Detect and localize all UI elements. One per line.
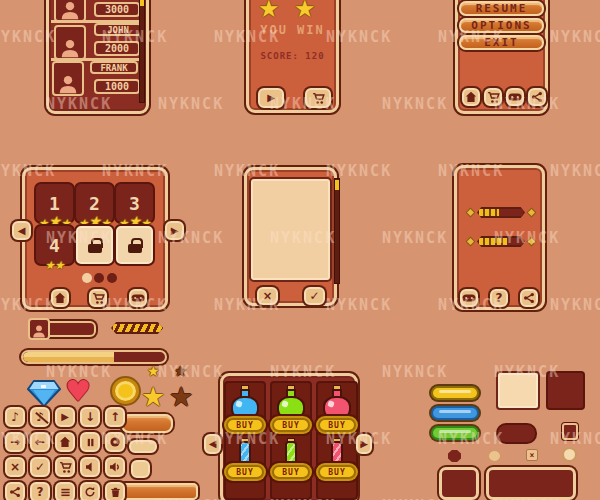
next-icon: ▶ bbox=[360, 439, 368, 449]
share-icon bbox=[17, 487, 20, 490]
shop-cart-icon bbox=[96, 301, 99, 304]
menu-list-icon bbox=[61, 488, 69, 490]
shop-cart-icon bbox=[495, 100, 498, 103]
arrow-down-button[interactable]: ↓ bbox=[80, 407, 100, 427]
gamepad-icon bbox=[140, 297, 142, 299]
gamepad-icon bbox=[511, 96, 513, 98]
home-button[interactable] bbox=[51, 289, 69, 307]
leaderboard-score: 3000 bbox=[94, 2, 140, 17]
arrow-left-icon: ← bbox=[35, 436, 45, 448]
level-number: 3 bbox=[129, 193, 140, 214]
gamepad-icon bbox=[131, 293, 145, 303]
win-star-icon: ★ bbox=[258, 0, 280, 21]
potion-part bbox=[277, 396, 305, 419]
home-button[interactable] bbox=[462, 88, 480, 106]
pause-icon bbox=[85, 437, 96, 448]
small-tan-square-button[interactable] bbox=[131, 460, 150, 478]
small-star-brown-icon: ★ bbox=[174, 364, 187, 378]
watermark-text: NYKNCK bbox=[158, 95, 224, 113]
leaderboard-scrollbar[interactable] bbox=[139, 0, 145, 103]
tan-ring-button[interactable] bbox=[562, 447, 577, 462]
trash-icon bbox=[113, 487, 116, 488]
level-tile-1[interactable]: 1★★★ bbox=[36, 184, 73, 222]
sound-off-icon bbox=[84, 461, 96, 473]
buy-button[interactable]: BUY bbox=[226, 465, 264, 479]
progress-bar bbox=[21, 350, 167, 364]
leaderboard-avatar bbox=[52, 61, 84, 96]
level-tile-locked[interactable] bbox=[76, 226, 113, 264]
tile-star-icon: ★ bbox=[45, 260, 55, 271]
watermark-text: NYKNCK bbox=[550, 296, 600, 314]
scrollbar-thumb[interactable] bbox=[335, 180, 339, 190]
share-button[interactable] bbox=[528, 88, 546, 106]
watermark-text: NYKNCK bbox=[158, 363, 224, 381]
leaderboard-avatar bbox=[54, 0, 86, 22]
buy-button[interactable]: BUY bbox=[226, 418, 264, 432]
leaderboard-score: 2000 bbox=[94, 41, 140, 56]
page-dot[interactable] bbox=[94, 273, 104, 283]
wide-frame-panel bbox=[486, 467, 576, 500]
coin-icon bbox=[112, 378, 139, 404]
menu-list-button[interactable] bbox=[55, 482, 75, 500]
diamond-gem-icon bbox=[27, 380, 61, 407]
share-icon bbox=[539, 99, 542, 102]
leaderboard-name: FRANK bbox=[90, 61, 138, 74]
gamepad-icon bbox=[465, 297, 467, 299]
pause-icon bbox=[87, 438, 89, 445]
person-icon bbox=[58, 74, 78, 94]
gamepad-icon bbox=[463, 295, 476, 302]
sound-off-button[interactable] bbox=[80, 457, 100, 477]
small-framed-square bbox=[562, 423, 578, 440]
level-number: 2 bbox=[89, 193, 100, 214]
options-button[interactable]: OPTIONS bbox=[459, 18, 544, 33]
shop-cart-button[interactable] bbox=[305, 88, 331, 108]
gamepad-icon bbox=[132, 295, 145, 302]
help-button[interactable]: ? bbox=[490, 289, 508, 307]
maroon-pill-swatch bbox=[498, 425, 535, 442]
page-dot[interactable] bbox=[107, 273, 117, 283]
arrow-up-button[interactable]: ↑ bbox=[105, 407, 125, 427]
watermark-text: NYKNCK bbox=[382, 229, 448, 247]
shop-cart-icon bbox=[487, 91, 500, 104]
watermark-text: NYKNCK bbox=[550, 162, 600, 180]
pill-button-1[interactable] bbox=[431, 406, 479, 420]
prev-icon: ◀ bbox=[18, 226, 26, 236]
shop-cart-icon bbox=[67, 470, 70, 473]
blue-vial-icon bbox=[239, 438, 251, 466]
help-button[interactable]: ? bbox=[30, 482, 50, 500]
menu-list-icon bbox=[61, 494, 69, 496]
share-icon bbox=[523, 292, 535, 304]
prev-button[interactable]: ◀ bbox=[12, 221, 31, 240]
tan-circle-button[interactable] bbox=[488, 450, 501, 462]
shop-cart-icon bbox=[59, 461, 72, 474]
vial-part bbox=[239, 441, 251, 466]
hud-avatar bbox=[28, 318, 50, 340]
share-icon bbox=[532, 95, 535, 98]
close-button[interactable]: × bbox=[257, 287, 278, 305]
close-icon: × bbox=[10, 461, 20, 473]
cream-square-swatch bbox=[498, 373, 538, 408]
slider-fill bbox=[479, 209, 499, 216]
vial-part bbox=[331, 441, 343, 466]
page-dot-active[interactable] bbox=[82, 273, 92, 283]
sound-on-button[interactable] bbox=[105, 457, 125, 477]
settings-slider-1[interactable] bbox=[477, 207, 525, 218]
shop-cart-button[interactable] bbox=[55, 457, 75, 477]
level-number: 1 bbox=[49, 193, 60, 214]
wide-wood-button[interactable] bbox=[121, 414, 173, 433]
trash-button[interactable] bbox=[105, 482, 125, 500]
person-icon bbox=[60, 38, 80, 58]
dialog-scrollbar[interactable] bbox=[334, 178, 340, 284]
shop-cart-icon bbox=[93, 293, 104, 298]
music-note-button[interactable]: ♪ bbox=[5, 407, 25, 427]
prev-button[interactable]: ◀ bbox=[204, 434, 221, 454]
maroon-octagon-shape bbox=[448, 450, 461, 462]
home-icon bbox=[55, 293, 65, 303]
share-icon bbox=[531, 300, 534, 303]
maroon-square-swatch bbox=[548, 373, 583, 408]
resume-button[interactable]: RESUME bbox=[459, 1, 544, 16]
arrow-right-button[interactable]: → bbox=[5, 432, 25, 452]
settings-slider-2[interactable] bbox=[477, 236, 525, 247]
gamepad-button[interactable] bbox=[460, 289, 478, 307]
share-button[interactable] bbox=[5, 482, 25, 500]
record-button[interactable] bbox=[105, 432, 125, 452]
tiny-close-button[interactable]: × bbox=[526, 449, 538, 461]
check-icon: ✓ bbox=[35, 461, 45, 473]
sound-on-icon bbox=[117, 465, 118, 470]
sound-on-icon bbox=[109, 461, 121, 473]
pill-shine bbox=[439, 410, 471, 413]
share-icon bbox=[539, 92, 542, 95]
trash-icon bbox=[112, 490, 119, 497]
gamepad-icon bbox=[471, 297, 473, 299]
check-button[interactable]: ✓ bbox=[30, 457, 50, 477]
sound-on-icon bbox=[110, 462, 116, 471]
menu-list-icon bbox=[61, 491, 69, 493]
heart-icon: ♥ bbox=[65, 377, 91, 406]
potion-part bbox=[323, 396, 351, 419]
leaderboard-avatar bbox=[54, 25, 86, 60]
exit-button[interactable]: EXIT bbox=[459, 35, 544, 50]
check-icon: ✓ bbox=[309, 290, 319, 302]
home-icon bbox=[60, 437, 70, 447]
big-star-brown-icon: ★ bbox=[169, 383, 193, 410]
shop-cart-icon bbox=[320, 101, 323, 104]
trash-icon bbox=[110, 487, 121, 498]
shop-cart-icon bbox=[488, 92, 499, 97]
green-potion-icon bbox=[277, 385, 305, 419]
pill-button-2[interactable] bbox=[431, 426, 479, 440]
arrow-right-icon: → bbox=[10, 436, 20, 448]
hud-chevron-meter bbox=[111, 322, 163, 334]
arrow-up-icon: ↑ bbox=[110, 411, 120, 423]
buy-button[interactable]: BUY bbox=[272, 465, 310, 479]
next-button[interactable]: ▶ bbox=[165, 221, 184, 240]
shop-cart-icon bbox=[100, 301, 103, 304]
next-icon: ▶ bbox=[171, 226, 179, 236]
buy-button[interactable]: BUY bbox=[318, 465, 356, 479]
lock-icon bbox=[88, 238, 102, 253]
hud-name-bar bbox=[48, 321, 96, 337]
game-ui-kit-sheet: 3000JOHN2000FRANK1000 ★ ★ YOU WIN SCORE:… bbox=[0, 0, 600, 500]
leaderboard-score: 1000 bbox=[94, 79, 140, 94]
shop-cart-button[interactable] bbox=[89, 289, 107, 307]
small-star-yellow-icon: ★ bbox=[147, 364, 160, 378]
share-icon bbox=[524, 296, 527, 299]
dialog-content-area bbox=[251, 179, 330, 280]
music-off-button[interactable]: ♪ bbox=[30, 407, 50, 427]
potion-part bbox=[231, 396, 259, 419]
shop-cart-icon bbox=[63, 470, 66, 473]
share-icon bbox=[531, 91, 543, 103]
gamepad-icon bbox=[134, 297, 136, 299]
red-vial-icon bbox=[331, 438, 343, 466]
record-icon bbox=[109, 436, 121, 448]
shop-cart-icon bbox=[60, 462, 71, 467]
home-button[interactable] bbox=[55, 432, 75, 452]
gamepad-button[interactable] bbox=[129, 289, 147, 307]
sound-off-icon bbox=[86, 462, 92, 471]
tile-star-icon: ★ bbox=[55, 260, 65, 271]
shop-cart-icon bbox=[92, 292, 105, 305]
win-star-icon: ★ bbox=[294, 0, 316, 21]
close-button[interactable]: × bbox=[5, 457, 25, 477]
shop-cart-icon bbox=[316, 101, 319, 104]
shop-cart-icon bbox=[491, 100, 494, 103]
big-star-yellow-icon: ★ bbox=[141, 383, 165, 410]
long-wood-bar-button[interactable] bbox=[120, 483, 198, 500]
check-button[interactable]: ✓ bbox=[304, 287, 325, 305]
share-button[interactable] bbox=[520, 289, 538, 307]
play-button[interactable]: ▶ bbox=[258, 88, 284, 108]
small-tan-pill-button[interactable] bbox=[129, 440, 157, 453]
shop-cart-icon bbox=[312, 92, 325, 105]
next-button[interactable]: ▶ bbox=[356, 434, 372, 454]
win-title: YOU WIN bbox=[246, 23, 339, 37]
arrow-down-icon: ↓ bbox=[85, 411, 95, 423]
music-note-icon: ♪ bbox=[11, 411, 19, 423]
share-icon bbox=[17, 494, 20, 497]
restart-icon bbox=[84, 486, 96, 498]
home-icon bbox=[465, 91, 477, 103]
blue-potion-icon bbox=[231, 385, 259, 419]
restart-button[interactable] bbox=[80, 482, 100, 500]
menu-list-icon bbox=[60, 487, 71, 498]
meter-fill bbox=[113, 324, 163, 332]
buy-button[interactable]: BUY bbox=[272, 418, 310, 432]
leaderboard-divider bbox=[51, 20, 139, 23]
home-icon bbox=[54, 292, 66, 304]
vial-part bbox=[285, 441, 297, 466]
slider-fill bbox=[479, 238, 507, 245]
gamepad-icon bbox=[517, 96, 519, 98]
trash-icon bbox=[111, 488, 119, 489]
gamepad-icon bbox=[508, 92, 522, 102]
green-vial-icon bbox=[285, 438, 297, 466]
pause-icon bbox=[91, 438, 93, 445]
gamepad-icon bbox=[462, 293, 476, 303]
level-tile-4[interactable]: 4★★ bbox=[36, 226, 73, 264]
prev-icon: ◀ bbox=[209, 439, 217, 449]
leaderboard-name: JOHN bbox=[94, 23, 142, 36]
watermark-text: NYKNCK bbox=[382, 95, 448, 113]
scrollbar-thumb[interactable] bbox=[140, 0, 144, 6]
play-icon: ▶ bbox=[61, 412, 69, 422]
watermark-text: NYKNCK bbox=[550, 28, 600, 46]
level-tile-3[interactable]: 3★★★ bbox=[116, 184, 153, 222]
home-icon bbox=[59, 436, 71, 448]
pill-shine bbox=[439, 430, 471, 433]
win-score-label: SCORE: 120 bbox=[246, 51, 339, 61]
gamepad-button[interactable] bbox=[506, 88, 524, 106]
level-tile-2[interactable]: 2★★★ bbox=[76, 184, 113, 222]
close-icon: × bbox=[262, 290, 272, 302]
shop-cart-icon bbox=[313, 93, 324, 98]
pill-shine bbox=[439, 390, 471, 393]
play-button[interactable]: ▶ bbox=[55, 407, 75, 427]
level-number: 4 bbox=[49, 235, 60, 256]
play-icon: ▶ bbox=[267, 93, 275, 103]
share-icon bbox=[9, 486, 21, 498]
buy-button[interactable]: BUY bbox=[318, 418, 356, 432]
shop-cart-button[interactable] bbox=[484, 88, 502, 106]
lock-icon bbox=[128, 238, 142, 253]
record-icon bbox=[113, 440, 117, 444]
leaderboard-divider bbox=[51, 58, 139, 61]
level-tile-locked[interactable] bbox=[116, 226, 153, 264]
share-icon bbox=[531, 293, 534, 296]
watermark-text: NYKNCK bbox=[382, 363, 448, 381]
person-icon bbox=[60, 0, 80, 20]
home-icon bbox=[466, 92, 476, 102]
pause-button[interactable] bbox=[80, 432, 100, 452]
music-off-icon: ♪ bbox=[36, 411, 44, 423]
share-icon bbox=[10, 490, 13, 493]
help-icon: ? bbox=[37, 486, 44, 498]
gamepad-icon bbox=[509, 94, 522, 101]
progress-bar-fill bbox=[23, 352, 114, 362]
small-frame-panel bbox=[439, 467, 479, 500]
red-potion-icon bbox=[323, 385, 351, 419]
pill-button-0[interactable] bbox=[431, 386, 479, 400]
help-icon: ? bbox=[496, 292, 503, 304]
arrow-left-button[interactable]: ← bbox=[30, 432, 50, 452]
